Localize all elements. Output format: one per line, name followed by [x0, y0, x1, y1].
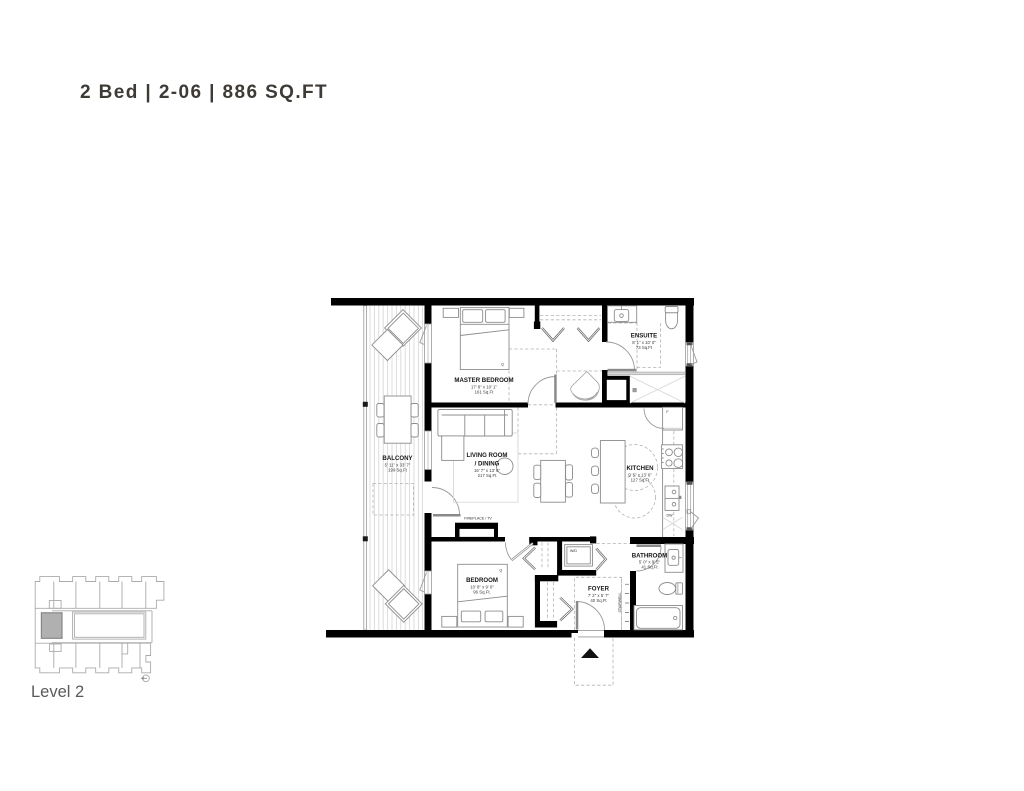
svg-text:FOYER: FOYER: [588, 586, 610, 593]
svg-text:MASTER BEDROOM: MASTER BEDROOM: [454, 377, 513, 384]
svg-text:FIREPLACE / TV: FIREPLACE / TV: [464, 516, 492, 520]
svg-text:Level 2: Level 2: [31, 683, 84, 701]
svg-text:KITCHEN: KITCHEN: [626, 465, 653, 472]
svg-text:73 Sq.Ft: 73 Sq.Ft: [636, 345, 653, 350]
svg-text:40 Sq.Ft: 40 Sq.Ft: [590, 598, 607, 603]
svg-text:W/D: W/D: [570, 549, 577, 553]
svg-text:161 Sq.Ft: 161 Sq.Ft: [475, 390, 494, 395]
svg-text:BATHROOM: BATHROOM: [632, 553, 667, 560]
svg-text:217 Sq.Ft: 217 Sq.Ft: [478, 473, 497, 478]
svg-text:LIVING ROOM: LIVING ROOM: [467, 452, 508, 459]
svg-text:BALCONY: BALCONY: [382, 455, 412, 462]
svg-text:41 Sq.Ft: 41 Sq.Ft: [641, 565, 658, 570]
svg-text:96 Sq.Ft.: 96 Sq.Ft.: [473, 590, 490, 595]
svg-text:Q: Q: [499, 569, 502, 573]
svg-text:127 Sq.Ft: 127 Sq.Ft: [631, 478, 650, 483]
svg-text:DW: DW: [667, 514, 674, 518]
svg-text:ENSUITE: ENSUITE: [631, 333, 657, 340]
svg-text:199 Sq.Ft: 199 Sq.Ft: [388, 468, 407, 473]
svg-text:2 Bed | 2-06 | 886 SQ.FT: 2 Bed | 2-06 | 886 SQ.FT: [80, 82, 328, 103]
svg-text:BEDROOM: BEDROOM: [466, 577, 498, 584]
svg-text:/ DINING: / DINING: [475, 461, 500, 468]
svg-text:Q: Q: [501, 363, 504, 367]
svg-text:STAIRWELL: STAIRWELL: [618, 592, 622, 612]
